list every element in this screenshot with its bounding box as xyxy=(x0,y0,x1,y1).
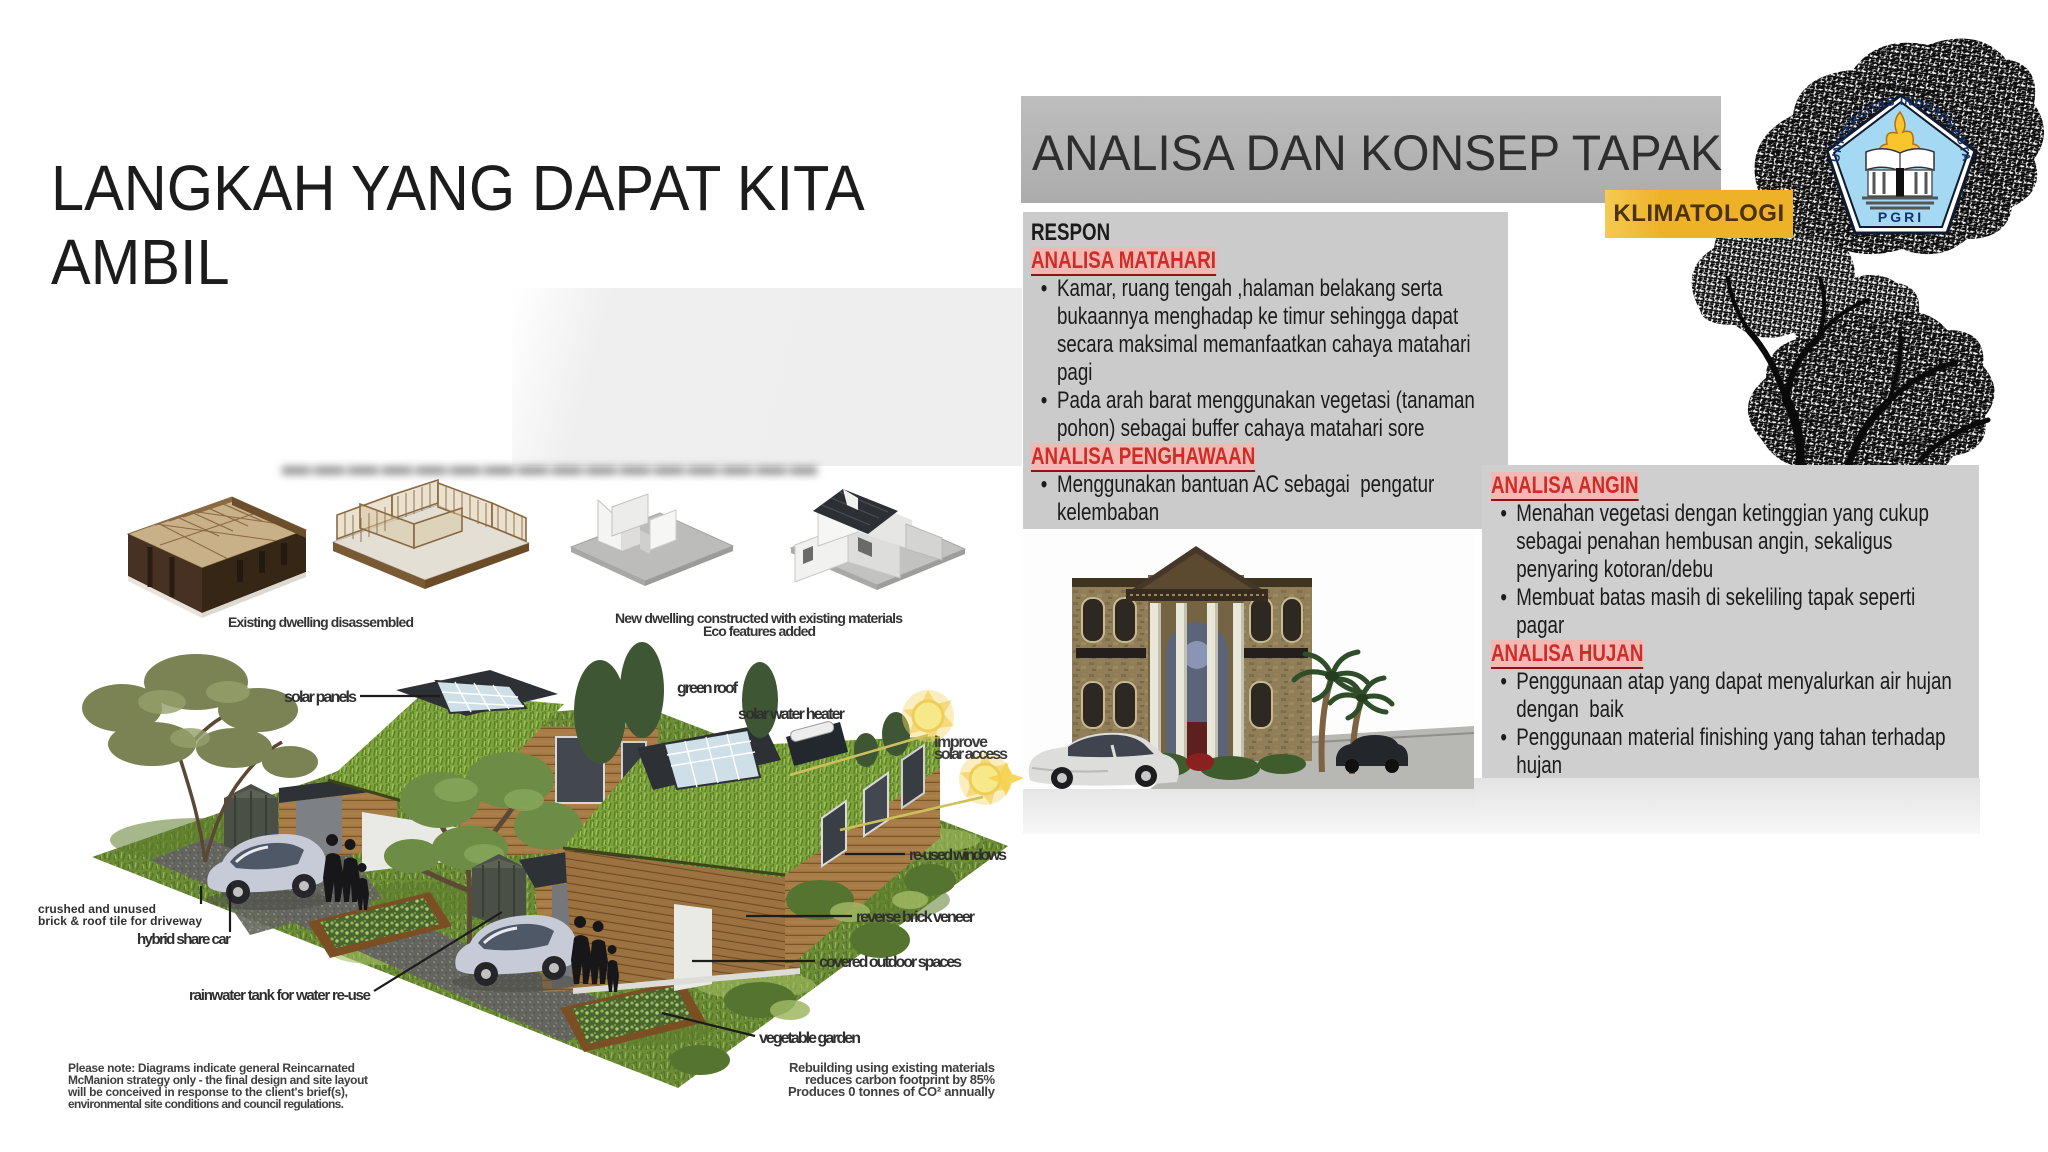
svg-text:Produces 0 tonnes of CO² annua: Produces 0 tonnes of CO² annually xyxy=(788,1084,996,1099)
svg-text:solar water heater: solar water heater xyxy=(738,706,845,723)
svg-text:green roof: green roof xyxy=(677,680,739,697)
svg-text:reverse brick veneer: reverse brick veneer xyxy=(856,909,975,926)
svg-text:re-used windows: re-used windows xyxy=(909,847,1007,864)
svg-text:environmental site conditions: environmental site conditions and counci… xyxy=(68,1097,344,1111)
svg-text:PGRI: PGRI xyxy=(1878,209,1924,225)
svg-text:rainwater tank for water re-us: rainwater tank for water re-use xyxy=(189,987,371,1004)
svg-text:brick & roof tile for driveway: brick & roof tile for driveway xyxy=(38,914,202,928)
svg-text:covered outdoor spaces: covered outdoor spaces xyxy=(819,954,962,971)
svg-text:solar panels: solar panels xyxy=(284,689,357,706)
svg-text:solar access: solar access xyxy=(934,746,1008,763)
svg-text:hybrid share car: hybrid share car xyxy=(137,931,231,948)
svg-text:Existing dwelling disassembled: Existing dwelling disassembled xyxy=(228,614,414,630)
svg-text:vegetable garden: vegetable garden xyxy=(759,1030,861,1047)
svg-text:Eco features added: Eco features added xyxy=(703,623,816,639)
